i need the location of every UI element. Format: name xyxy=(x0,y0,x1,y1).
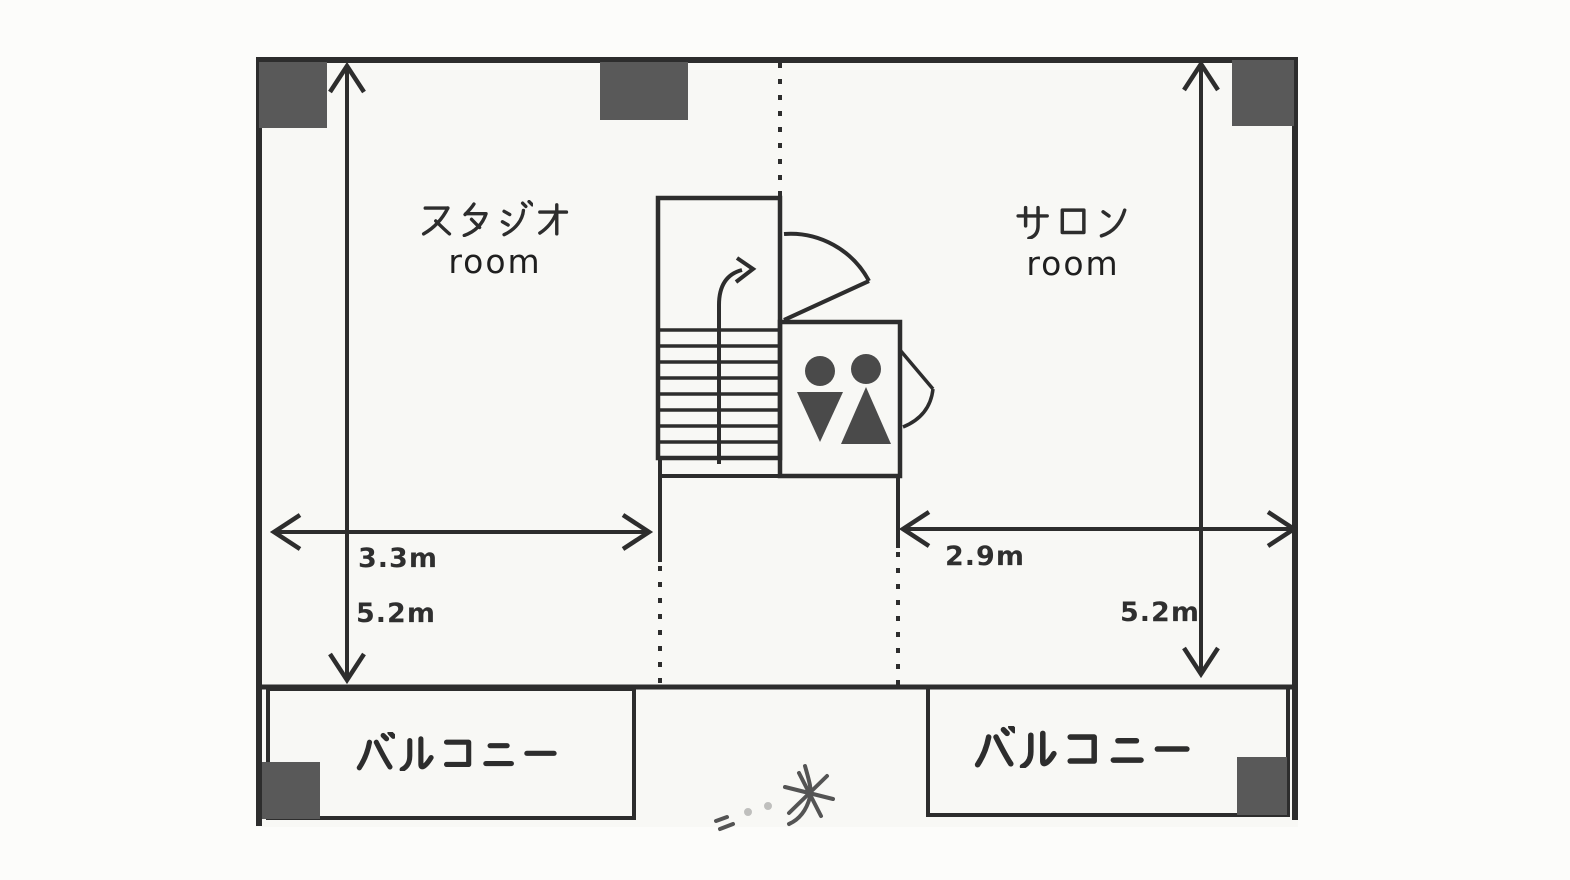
studio-room-label: room xyxy=(395,200,595,281)
balcony-right-label-jp xyxy=(955,726,1210,768)
salon-room-label-jp xyxy=(973,201,1173,239)
door-swing-arc-small xyxy=(903,389,933,427)
dim-arrow-studio-depth xyxy=(330,66,364,680)
toilet-icons xyxy=(797,354,891,444)
staircase xyxy=(658,198,780,464)
door-leaf-large xyxy=(784,281,869,320)
dim-label-salon-width: 2.9m xyxy=(945,541,1025,572)
male-figure-icon xyxy=(805,356,835,386)
studio-room-label-en: room xyxy=(395,242,595,281)
pillar-bottom-left xyxy=(262,762,320,819)
dim-label-salon-depth: 5.2m xyxy=(1120,597,1200,628)
floor-plan-drawing xyxy=(0,0,1570,880)
pillar-top-right xyxy=(1232,60,1294,126)
floor-plan-page: room room 3.3m 5.2m 2.9m 5.2m xyxy=(0,0,1570,880)
smudge-dot xyxy=(746,810,750,814)
female-figure-body-icon xyxy=(841,387,891,444)
toilet-room-outline xyxy=(780,322,900,476)
dim-label-studio-width: 3.3m xyxy=(358,543,438,574)
dim-arrow-studio-width xyxy=(274,515,649,549)
balcony-left-label xyxy=(330,732,585,771)
pillar-top-left xyxy=(259,62,327,128)
small-mark-icon xyxy=(716,817,733,829)
door-swing-arc-large xyxy=(784,234,869,281)
female-figure-icon xyxy=(851,354,881,384)
door-leaf-small xyxy=(900,350,933,389)
dim-label-studio-depth: 5.2m xyxy=(356,598,436,629)
salon-room-label-en: room xyxy=(973,244,1173,283)
male-figure-body-icon xyxy=(797,392,843,442)
studio-room-label-jp xyxy=(395,200,595,237)
toilet-room xyxy=(780,322,900,476)
salon-room-label: room xyxy=(973,201,1173,283)
pillars xyxy=(259,60,1294,819)
pillar-top-center xyxy=(600,62,688,120)
handwritten-marks xyxy=(716,766,833,829)
dim-arrow-salon-depth xyxy=(1184,64,1218,674)
smudge-dot xyxy=(766,804,770,808)
dimension-arrows xyxy=(274,64,1294,680)
stair-up-arrow xyxy=(719,270,742,464)
pillar-bottom-right xyxy=(1237,757,1287,815)
balcony-left-label-jp xyxy=(330,732,585,771)
balcony-right-label xyxy=(955,726,1210,768)
